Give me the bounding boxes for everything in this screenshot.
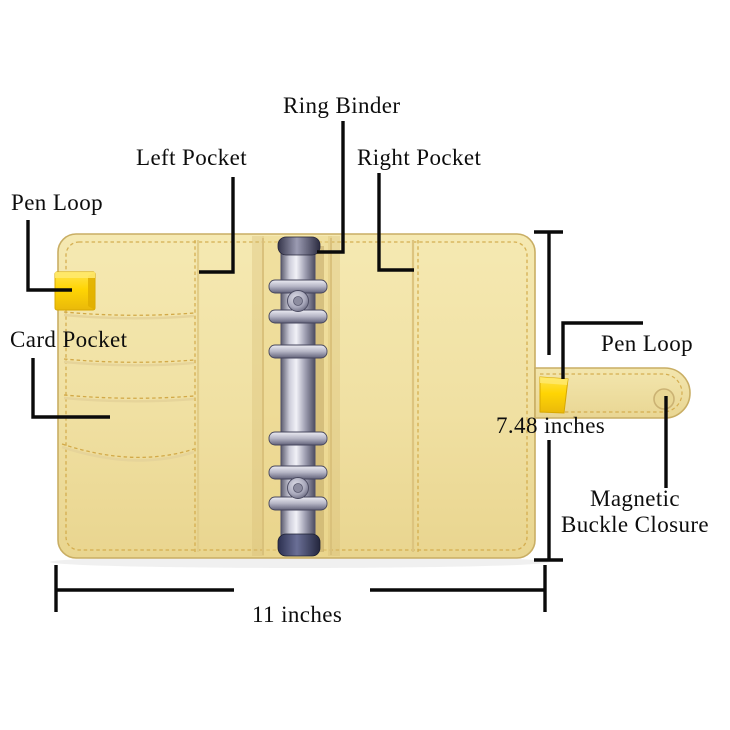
magnetic-buckle-closure-label: Magnetic Buckle Closure xyxy=(551,486,719,538)
left-pocket-label: Left Pocket xyxy=(136,145,247,171)
mechanism-bottom-cap xyxy=(278,534,320,556)
ring-binder-label: Ring Binder xyxy=(283,93,400,119)
mechanism-top-cap xyxy=(278,237,320,255)
height-dimension-label: 7.48 inches xyxy=(496,413,605,439)
pen-loop-right-part xyxy=(540,377,568,413)
magnetic-buckle-line1: Magnetic xyxy=(551,486,719,512)
pen-loop-right-label: Pen Loop xyxy=(601,331,693,357)
binder-product-diagram: Pen Loop Left Pocket Ring Binder Right P… xyxy=(0,0,730,730)
magnetic-buckle-line2: Buckle Closure xyxy=(551,512,719,538)
ring-binder-leader xyxy=(317,121,343,252)
width-dimension-label: 11 inches xyxy=(252,602,342,628)
magnetic-snap xyxy=(654,389,674,409)
pen-loop-left-label: Pen Loop xyxy=(11,190,103,216)
right-pocket-label: Right Pocket xyxy=(357,145,481,171)
card-pocket-label: Card Pocket xyxy=(10,327,127,353)
